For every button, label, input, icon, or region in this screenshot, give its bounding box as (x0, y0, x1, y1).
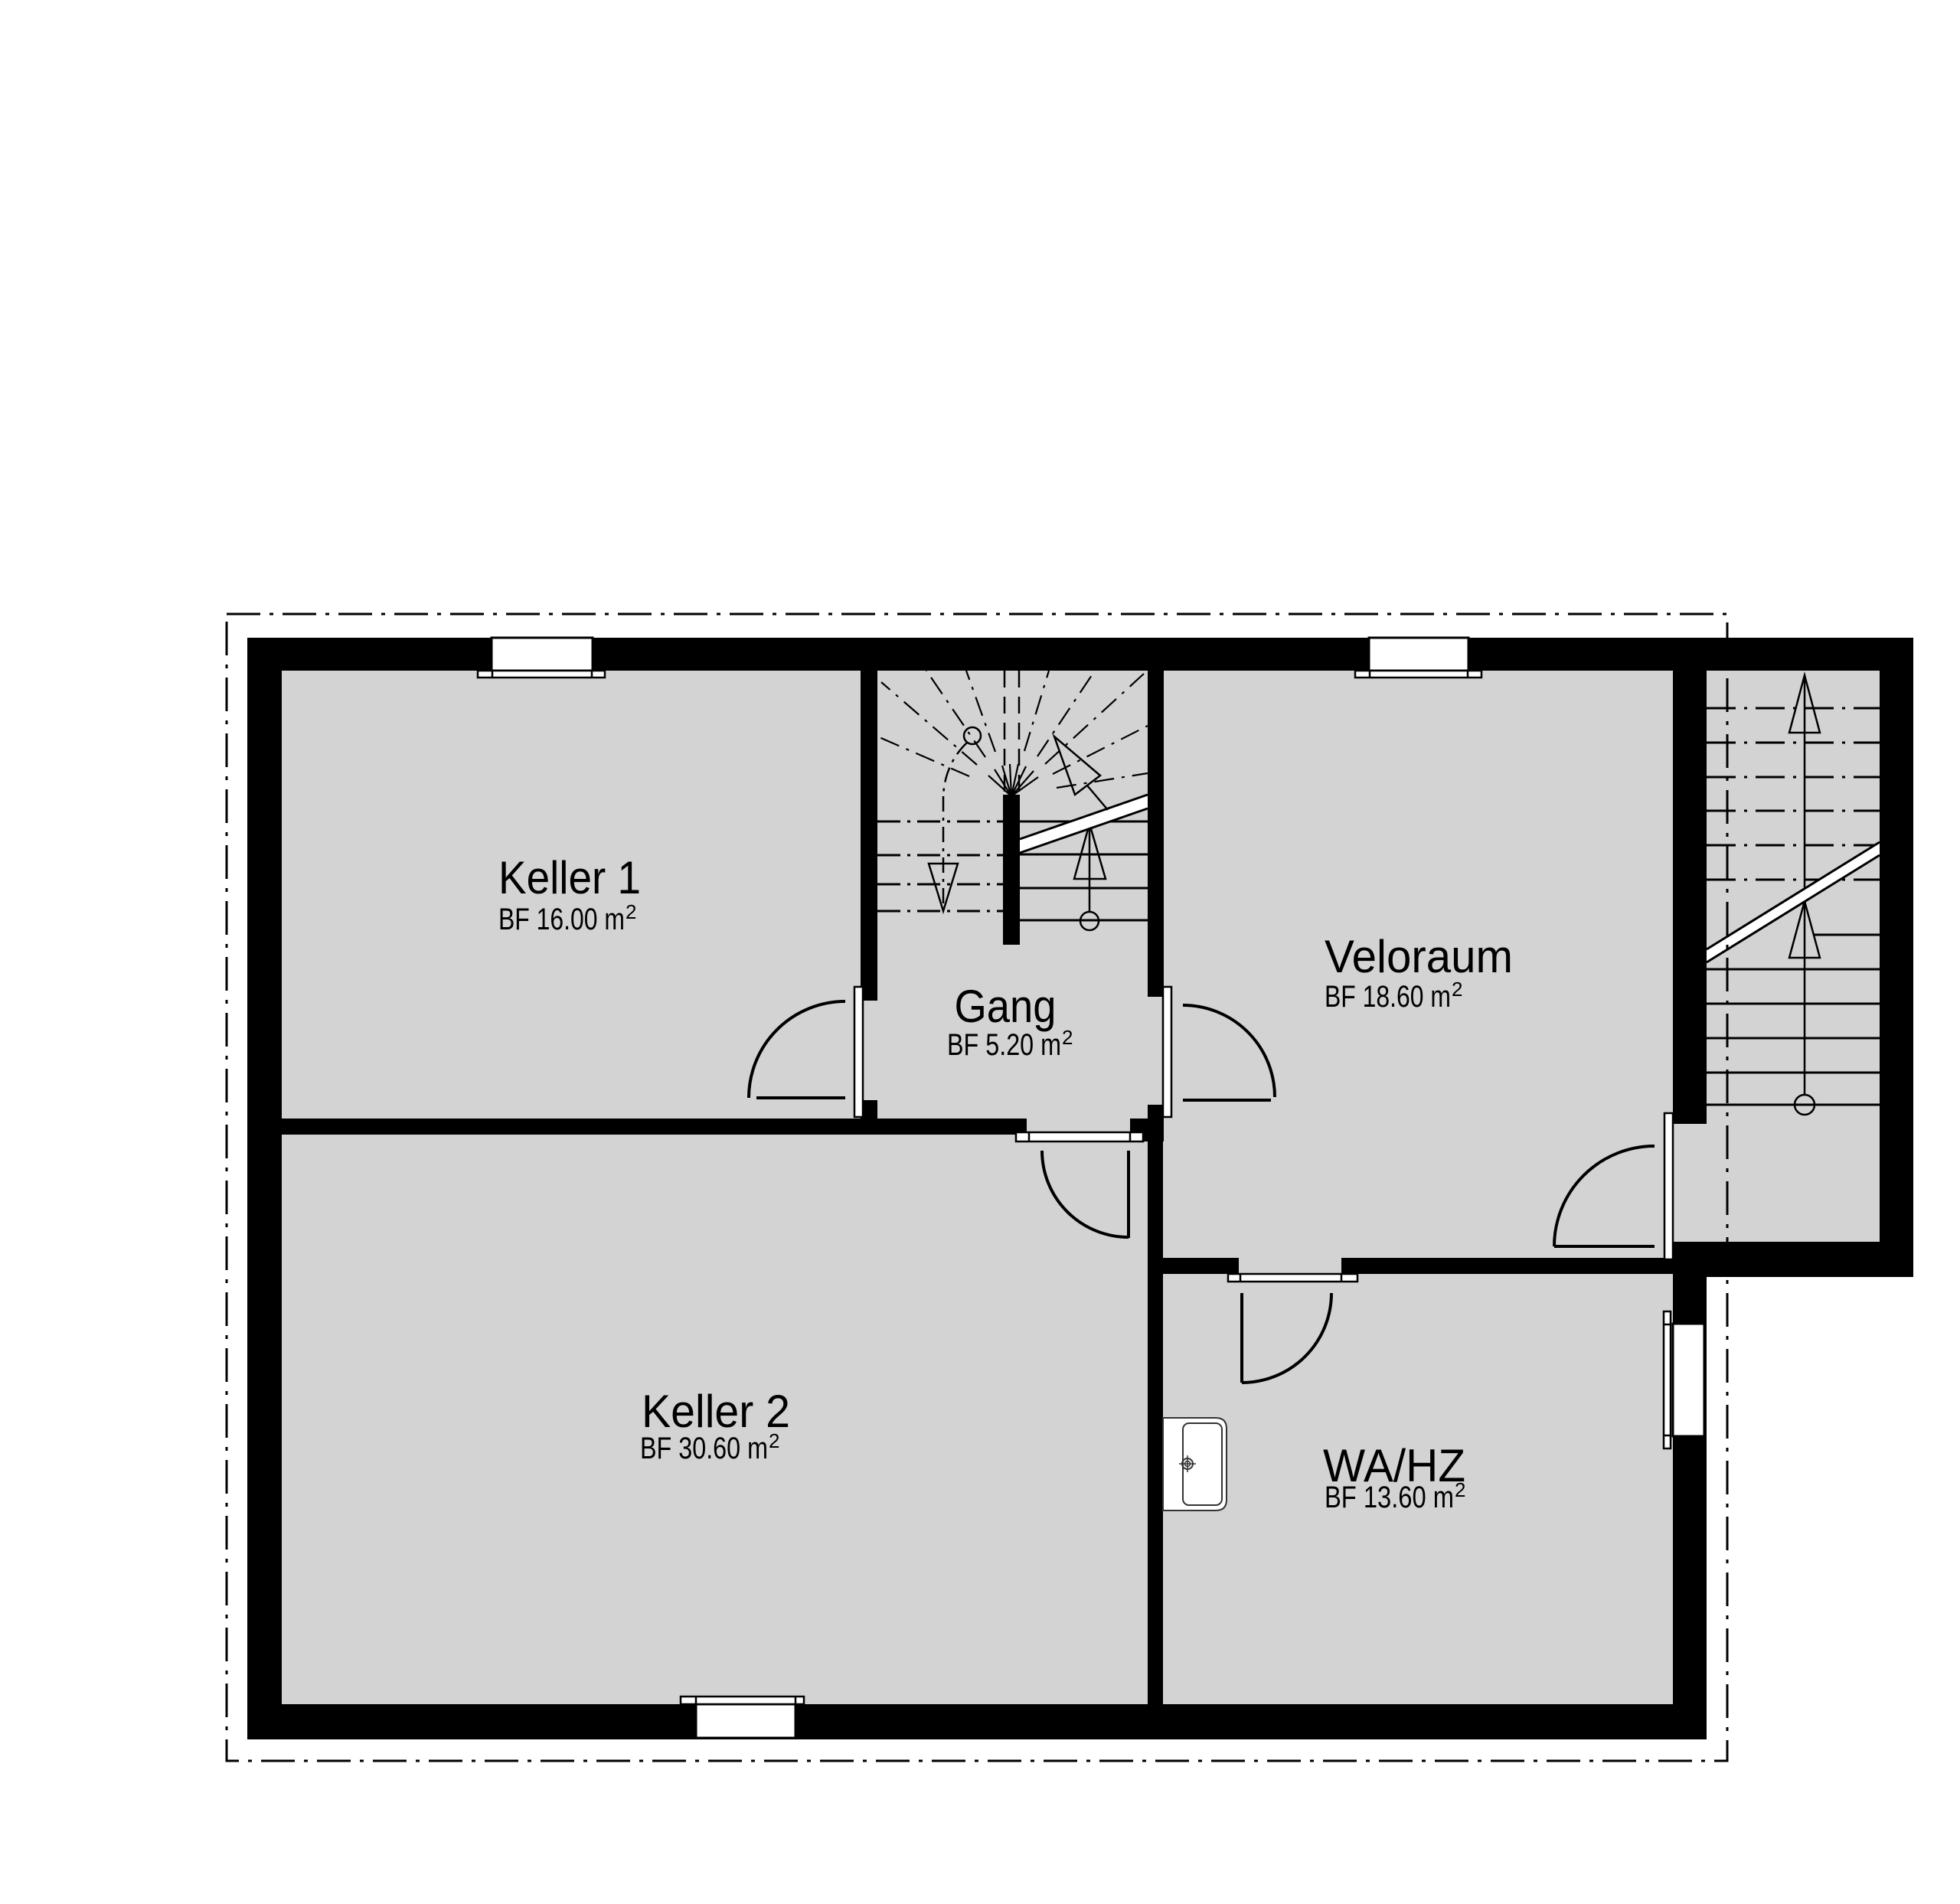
svg-text:BF 18.60 m: BF 18.60 m (1325, 980, 1451, 1014)
svg-text:BF 16.00 m: BF 16.00 m (498, 903, 625, 936)
svg-text:BF 30.60 m: BF 30.60 m (640, 1432, 768, 1465)
svg-text:2: 2 (626, 900, 636, 923)
svg-text:Veloraum: Veloraum (1325, 931, 1513, 982)
svg-text:BF 5.20 m: BF 5.20 m (947, 1028, 1061, 1062)
svg-text:Gang: Gang (955, 981, 1057, 1032)
svg-text:2: 2 (1452, 978, 1462, 1001)
svg-text:BF 13.60 m: BF 13.60 m (1325, 1481, 1454, 1514)
svg-text:Keller 2: Keller 2 (642, 1386, 790, 1437)
svg-text:2: 2 (769, 1429, 779, 1452)
svg-text:2: 2 (1455, 1478, 1465, 1501)
svg-text:2: 2 (1062, 1026, 1073, 1049)
svg-text:Keller 1: Keller 1 (498, 852, 641, 903)
